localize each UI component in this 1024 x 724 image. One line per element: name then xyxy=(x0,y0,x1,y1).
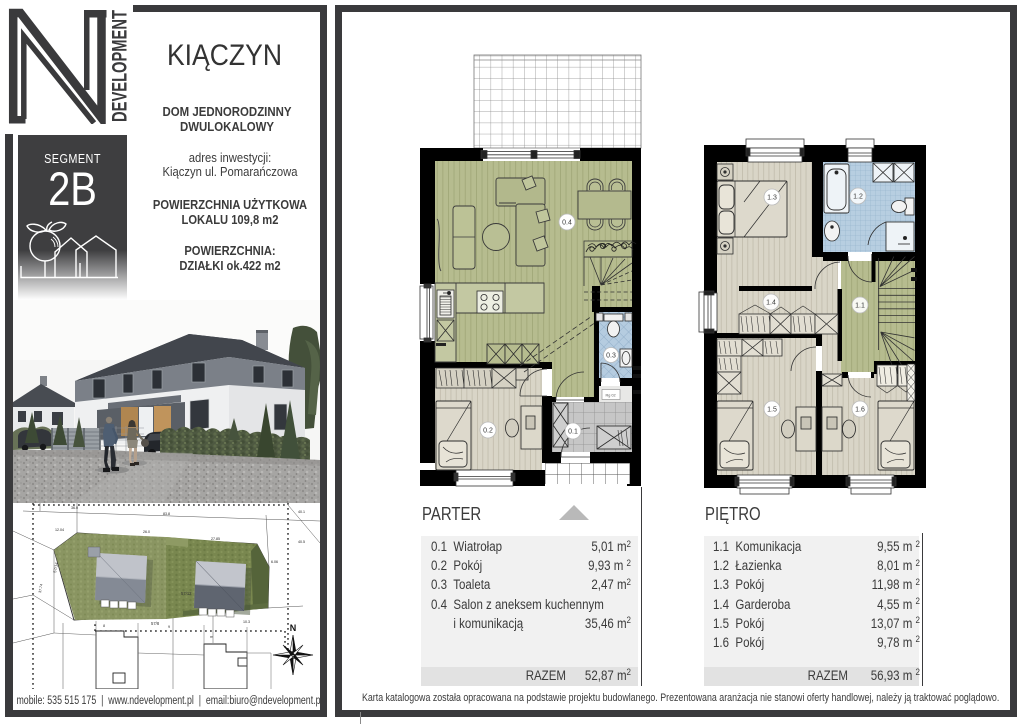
svg-text:83.8: 83.8 xyxy=(163,512,170,516)
svg-text:9: 9 xyxy=(168,625,170,629)
svg-text:27.85: 27.85 xyxy=(211,537,220,541)
svg-text:26.0: 26.0 xyxy=(143,530,150,534)
svg-text:1.4: 1.4 xyxy=(766,300,776,307)
svg-text:0.1: 0.1 xyxy=(568,429,578,436)
svg-text:12.04: 12.04 xyxy=(55,528,64,532)
svg-text:40.1: 40.1 xyxy=(298,510,305,514)
svg-text:0.2: 0.2 xyxy=(483,428,493,435)
svg-text:8: 8 xyxy=(103,624,105,628)
svg-text:1.2: 1.2 xyxy=(853,194,863,201)
svg-text:57/12: 57/12 xyxy=(181,591,192,596)
svg-text:1.1: 1.1 xyxy=(855,303,865,310)
svg-text:N: N xyxy=(290,623,297,633)
svg-text:1.5: 1.5 xyxy=(767,407,777,414)
svg-text:m: m xyxy=(210,635,213,639)
svg-text:1.3: 1.3 xyxy=(767,195,777,202)
svg-text:1.6: 1.6 xyxy=(855,407,865,414)
svg-text:0.4: 0.4 xyxy=(562,220,572,227)
svg-text:0.3: 0.3 xyxy=(606,353,616,360)
svg-text:10.3: 10.3 xyxy=(243,620,250,624)
svg-text:36.0: 36.0 xyxy=(71,506,78,510)
svg-text:Rg 02: Rg 02 xyxy=(606,394,616,398)
svg-text:40.5: 40.5 xyxy=(298,540,305,544)
svg-text:6.06: 6.06 xyxy=(271,560,278,564)
svg-text:57/8: 57/8 xyxy=(151,621,160,626)
